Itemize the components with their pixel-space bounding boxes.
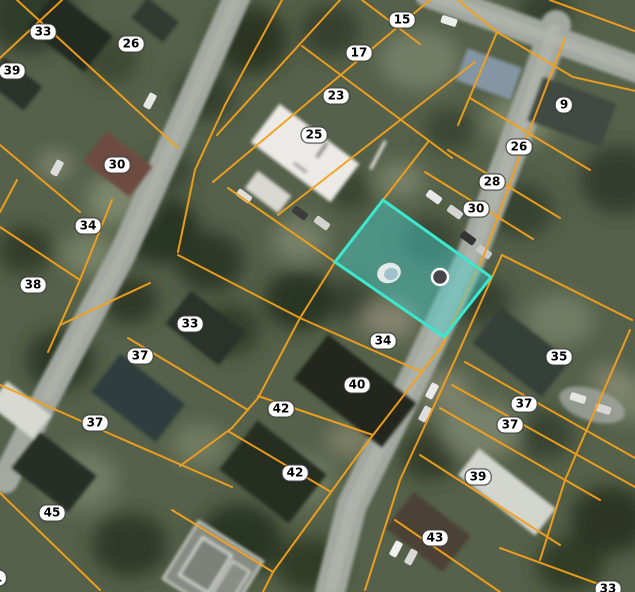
parcel-label[interactable]: 37: [82, 415, 109, 432]
parcel-label[interactable]: 33: [595, 581, 622, 592]
parcel-label[interactable]: 34: [370, 333, 397, 350]
parcel-label[interactable]: 17: [346, 45, 373, 62]
parcel-label[interactable]: 25: [301, 127, 328, 144]
parcel-label[interactable]: 40: [344, 377, 371, 394]
parcel-label[interactable]: 30: [104, 157, 131, 174]
building-blue-roof: [456, 48, 522, 100]
parcel-label[interactable]: 37: [497, 417, 524, 434]
parcel-label[interactable]: 9: [555, 97, 573, 114]
parcel-label[interactable]: 26: [506, 139, 533, 156]
parcel-label[interactable]: 37: [127, 348, 154, 365]
map-imagery: [0, 0, 635, 592]
parcel-label[interactable]: 39: [465, 469, 492, 486]
parcel-label[interactable]: 23: [323, 88, 350, 105]
parcel-label[interactable]: 33: [30, 24, 57, 41]
parcel-label[interactable]: 35: [546, 349, 573, 366]
parcel-label[interactable]: 43: [422, 530, 449, 547]
parcel-label[interactable]: 42: [282, 465, 309, 482]
parcel-label[interactable]: 28: [479, 174, 506, 191]
parcel-label[interactable]: 38: [20, 277, 47, 294]
parcel-label[interactable]: 39: [0, 63, 25, 80]
aerial-map[interactable]: 3326393034381517232592628303337374534404…: [0, 0, 635, 592]
parcel-label[interactable]: 34: [75, 218, 102, 235]
parcel-label[interactable]: 15: [389, 12, 416, 29]
building-white: [458, 448, 556, 535]
parcel-label[interactable]: 33: [177, 316, 204, 333]
parcel-label[interactable]: 42: [268, 401, 295, 418]
parcel-label[interactable]: 45: [39, 505, 66, 522]
parcel-label[interactable]: 37: [511, 396, 538, 413]
parcel-label[interactable]: 30: [463, 201, 490, 218]
point-marker: [432, 269, 448, 285]
parcel-label[interactable]: 26: [118, 36, 145, 53]
building: [245, 171, 292, 214]
